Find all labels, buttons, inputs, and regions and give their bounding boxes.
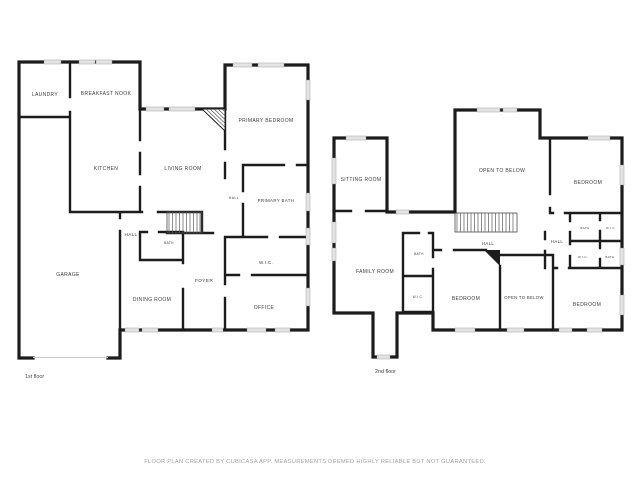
room-label-office: OFFICE [254,305,275,311]
floor-label-2nd: 2nd floor [375,369,396,375]
room-label-bath-se: BATH [605,255,614,259]
room-label-bedroom-ne: BEDROOM [574,180,602,186]
interior-walls [19,62,308,330]
window-marker [620,248,624,265]
room-label-primary-bedroom: PRIMARY BEDROOM [238,118,293,124]
room-label-bath-center: BATH [414,252,424,256]
window-marker [306,193,310,211]
exterior-walls [334,110,622,357]
window-marker [275,328,290,332]
room-label-open-to-below-bottom: OPEN TO BELOW [504,295,544,300]
room-label-hall-east: HALL [551,239,564,244]
disclaimer-text: FLOOR PLAN CREATED BY CUBICASA APP. MEAS… [144,459,486,465]
room-label-bath-ne: BATH [580,226,589,230]
window-marker [332,158,336,184]
floor-plan-canvas: LAUNDRY BREAKFAST NOOK KITCHEN LIVING RO… [0,0,640,479]
window-marker [306,228,310,245]
window-marker [247,328,266,332]
window-marker [455,328,475,332]
window-marker [169,107,195,111]
room-label-dining-room: DINING ROOM [133,297,171,303]
window-marker [146,107,164,111]
room-label-laundry: LAUNDRY [32,92,59,98]
window-marker [332,222,336,243]
room-label-wic-center: W.I.C. [413,295,424,299]
room-label-wic-se: W.I.C. [578,255,588,259]
stairs-treads [457,213,513,232]
second-floor-plan: SITTING ROOM OPEN TO BELOW BEDROOM FAMIL… [332,108,624,375]
room-label-open-to-below-top: OPEN TO BELOW [479,168,525,174]
room-label-family-room: FAMILY ROOM [356,269,394,275]
room-label-living-room: LIVING ROOM [164,166,201,172]
window-marker [44,60,61,64]
window-marker [332,248,336,261]
window-marker [559,328,572,332]
window-marker [258,63,284,67]
window-marker [142,328,158,332]
window-marker [507,328,524,332]
diagonal-wall-corner [484,250,500,266]
window-marker [588,136,610,140]
window-marker [125,328,139,332]
stairs-first-floor [167,212,202,233]
room-label-garage: GARAGE [56,272,80,278]
window-marker [503,108,517,112]
room-label-bath: BATH [164,241,174,245]
windows-second-floor [332,108,624,359]
window-marker [306,80,310,100]
room-label-bedroom-se: BEDROOM [573,302,601,308]
window-marker [477,108,500,112]
window-marker [377,355,390,359]
first-floor-plan: LAUNDRY BREAKFAST NOOK KITCHEN LIVING RO… [19,60,310,380]
window-marker [79,60,95,64]
window-marker [212,328,223,332]
room-label-wic-ne: W.I.C. [606,226,616,230]
window-marker [96,60,112,64]
room-label-bedroom-center: BEDROOM [452,296,480,302]
room-label-hall: HALL [125,232,138,237]
window-marker [620,295,624,315]
room-label-hall-upper: HALL [229,196,239,200]
window-marker [396,210,409,214]
fireplace-corner [202,109,225,131]
stairs-second-floor [455,213,517,232]
room-label-wic: W.I.C. [259,260,273,265]
window-marker [587,328,602,332]
room-label-sitting-room: SITTING ROOM [341,177,382,183]
room-label-primary-bath: PRIMARY BATH [258,198,295,203]
window-marker [233,63,252,67]
floor-label-1st: 1st floor [25,374,44,380]
room-label-kitchen: KITCHEN [94,166,118,172]
exterior-walls [19,62,308,358]
window-marker [620,165,624,185]
stairs-treads [169,212,200,233]
windows-first-floor [44,60,310,332]
window-marker [306,288,310,306]
room-label-foyer: FOYER [195,278,213,284]
window-marker [346,136,366,140]
room-label-breakfast-nook: BREAKFAST NOOK [81,91,132,97]
room-label-hall-west: HALL [482,241,495,246]
